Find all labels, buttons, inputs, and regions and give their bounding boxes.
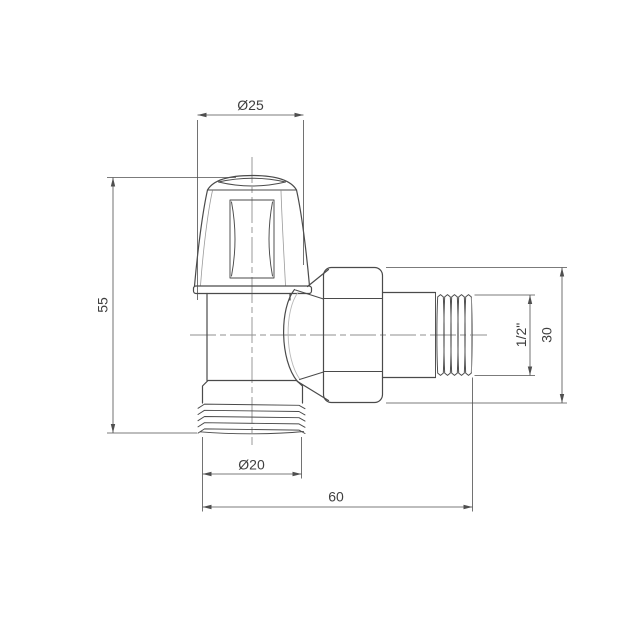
handle-grip-right-curve — [269, 202, 273, 276]
drawing-canvas: Ø25 55 Ø20 60 1/2" — [0, 0, 630, 630]
arrowhead-right — [464, 505, 473, 509]
thread-crest — [198, 423, 305, 428]
arrowhead-top — [528, 295, 532, 304]
dimension-overall-length: 60 — [203, 378, 473, 512]
neck-bottom-inner — [300, 372, 324, 380]
arrowhead-right — [295, 113, 304, 117]
dimension-knob-diameter: Ø25 — [198, 97, 304, 300]
tail-male-thread — [198, 404, 305, 434]
dim-label-outlet-height: 30 — [539, 327, 555, 343]
arrowhead-bottom — [528, 367, 532, 376]
thread-crest — [198, 410, 305, 415]
dim-label-valve-height: 55 — [95, 297, 111, 313]
valve-handle — [194, 176, 312, 294]
thread-crest — [198, 417, 305, 422]
neck-top-outer — [308, 270, 329, 287]
dim-label-overall-length: 60 — [328, 489, 344, 505]
handle-left-tangent-edge — [201, 191, 213, 286]
neck-top-inner — [296, 290, 324, 299]
arrowhead-bottom — [111, 424, 115, 433]
dimension-valve-height: 55 — [95, 178, 237, 434]
arrowhead-right — [293, 472, 302, 476]
tail-collar — [203, 381, 303, 404]
dim-label-thread-size: 1/2" — [513, 323, 529, 347]
body-sphere-arc — [284, 290, 298, 382]
dim-label-knob-diameter: Ø25 — [237, 97, 264, 113]
body-sphere-arc-highlight — [288, 293, 300, 380]
handle-grip-left-curve — [232, 202, 236, 276]
arrowhead-left — [203, 505, 212, 509]
handle-left-side — [195, 190, 208, 286]
collar-outline — [203, 381, 303, 404]
valve-technical-drawing: Ø25 55 Ø20 60 1/2" — [0, 0, 630, 630]
arrowhead-left — [198, 113, 207, 117]
arrowhead-left — [203, 472, 212, 476]
dimension-tail-diameter: Ø20 — [203, 437, 302, 512]
arrowhead-top — [560, 268, 564, 277]
arrowhead-bottom — [560, 394, 564, 403]
dim-label-tail-diameter: Ø20 — [238, 457, 265, 473]
handle-right-side — [297, 190, 310, 286]
handle-right-tangent-edge — [281, 191, 286, 286]
arrowhead-top — [111, 178, 115, 187]
thread-crest — [198, 404, 305, 409]
